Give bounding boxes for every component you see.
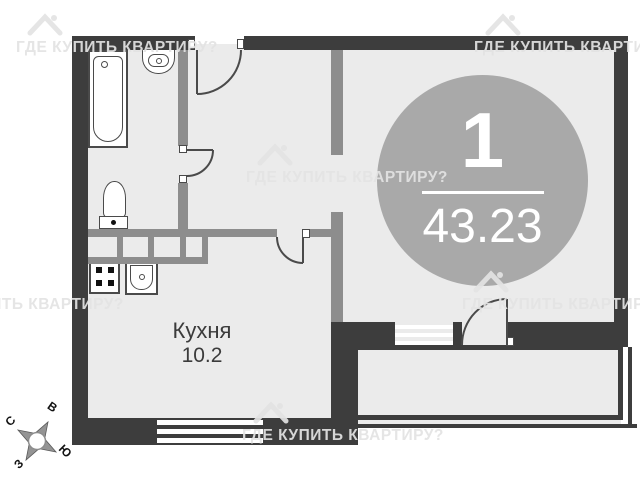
kitchen-wall <box>310 229 331 237</box>
kitchen-wall <box>88 229 277 237</box>
living-window <box>395 333 453 337</box>
house-icon <box>472 269 512 293</box>
door-jamb <box>179 145 187 153</box>
compass-arm <box>35 419 53 438</box>
compass-arm <box>21 443 39 462</box>
bathroom-wall <box>178 183 188 229</box>
watermark-text: ГДЕ КУПИТЬ КВАРТИРУ? <box>474 39 640 57</box>
living-window <box>395 341 453 345</box>
door-jamb <box>506 337 514 346</box>
watermark-text: ГДЕ КУПИТЬ КВАРТИРУ? <box>246 169 448 187</box>
watermark: ГДЕ КУПИТЬ КВАРТИРУ? <box>246 142 448 187</box>
wall-living-bottom <box>506 322 628 347</box>
kitchen-label: Кухня 10.2 <box>142 318 262 369</box>
kitchen-name: Кухня <box>142 318 262 344</box>
wall-living-bottom <box>453 322 462 347</box>
wall-left <box>72 36 88 445</box>
floor-plan: 1 43.23 Кухня 10.2 С В Ю З ГДЕ КУПИТЬ КВ… <box>0 0 640 480</box>
flat-number: 1 <box>461 105 504 177</box>
toilet-button <box>111 220 116 225</box>
house-icon <box>484 12 524 36</box>
living-window <box>395 325 453 329</box>
door-jamb <box>302 229 310 238</box>
watermark: ГДЕ КУПИТЬ КВАРТИРУ? <box>242 400 444 445</box>
hallway-partition <box>331 50 343 155</box>
kitchen-partition <box>331 212 343 322</box>
compass-east: В <box>45 399 60 415</box>
house-icon <box>252 400 292 424</box>
door-jamb <box>179 175 187 183</box>
watermark-text: ГДЕ КУПИТЬ КВАРТИРУ? <box>242 427 444 445</box>
house-icon <box>256 142 296 166</box>
watermark: ГДЕ КУПИТЬ КВАРТИРУ? <box>474 12 640 57</box>
watermark: ГДЕ КУПИТЬ КВАРТИРУ? <box>0 269 124 314</box>
watermark-text: ГДЕ КУПИТЬ КВАРТИРУ? <box>16 39 218 57</box>
toilet-bowl <box>103 181 126 218</box>
compass-north: С <box>2 413 18 429</box>
watermark-text: ГДЕ КУПИТЬ КВАРТИРУ? <box>0 296 124 314</box>
compass-west: З <box>11 456 26 471</box>
bathtub-drain <box>101 61 108 68</box>
kitchen-sink-drain <box>139 274 145 280</box>
kitchen-area: 10.2 <box>142 344 262 369</box>
flat-area: 43.23 <box>422 204 542 250</box>
house-icon <box>26 12 66 36</box>
closet-rail <box>88 257 208 264</box>
closet-divider <box>202 237 208 264</box>
compass-rose <box>0 400 80 480</box>
closet-divider <box>117 237 123 257</box>
badge-divider <box>422 191 544 194</box>
watermark: ГДЕ КУПИТЬ КВАРТИРУ? <box>16 12 218 57</box>
compass-arm <box>15 425 34 443</box>
bathtub-basin <box>93 56 123 142</box>
door-jamb <box>237 39 244 49</box>
bathroom-wall <box>178 50 188 146</box>
compass-arm <box>39 439 58 457</box>
closet-divider <box>148 237 154 257</box>
bathroom-sink-drain <box>156 58 162 64</box>
closet-divider <box>180 237 186 257</box>
watermark-text: ГДЕ КУПИТЬ КВАРТИРУ? <box>462 296 640 314</box>
balcony-outer-line <box>628 347 632 428</box>
compass-hub <box>25 429 48 452</box>
watermark: ГДЕ КУПИТЬ КВАРТИРУ? <box>462 269 640 314</box>
